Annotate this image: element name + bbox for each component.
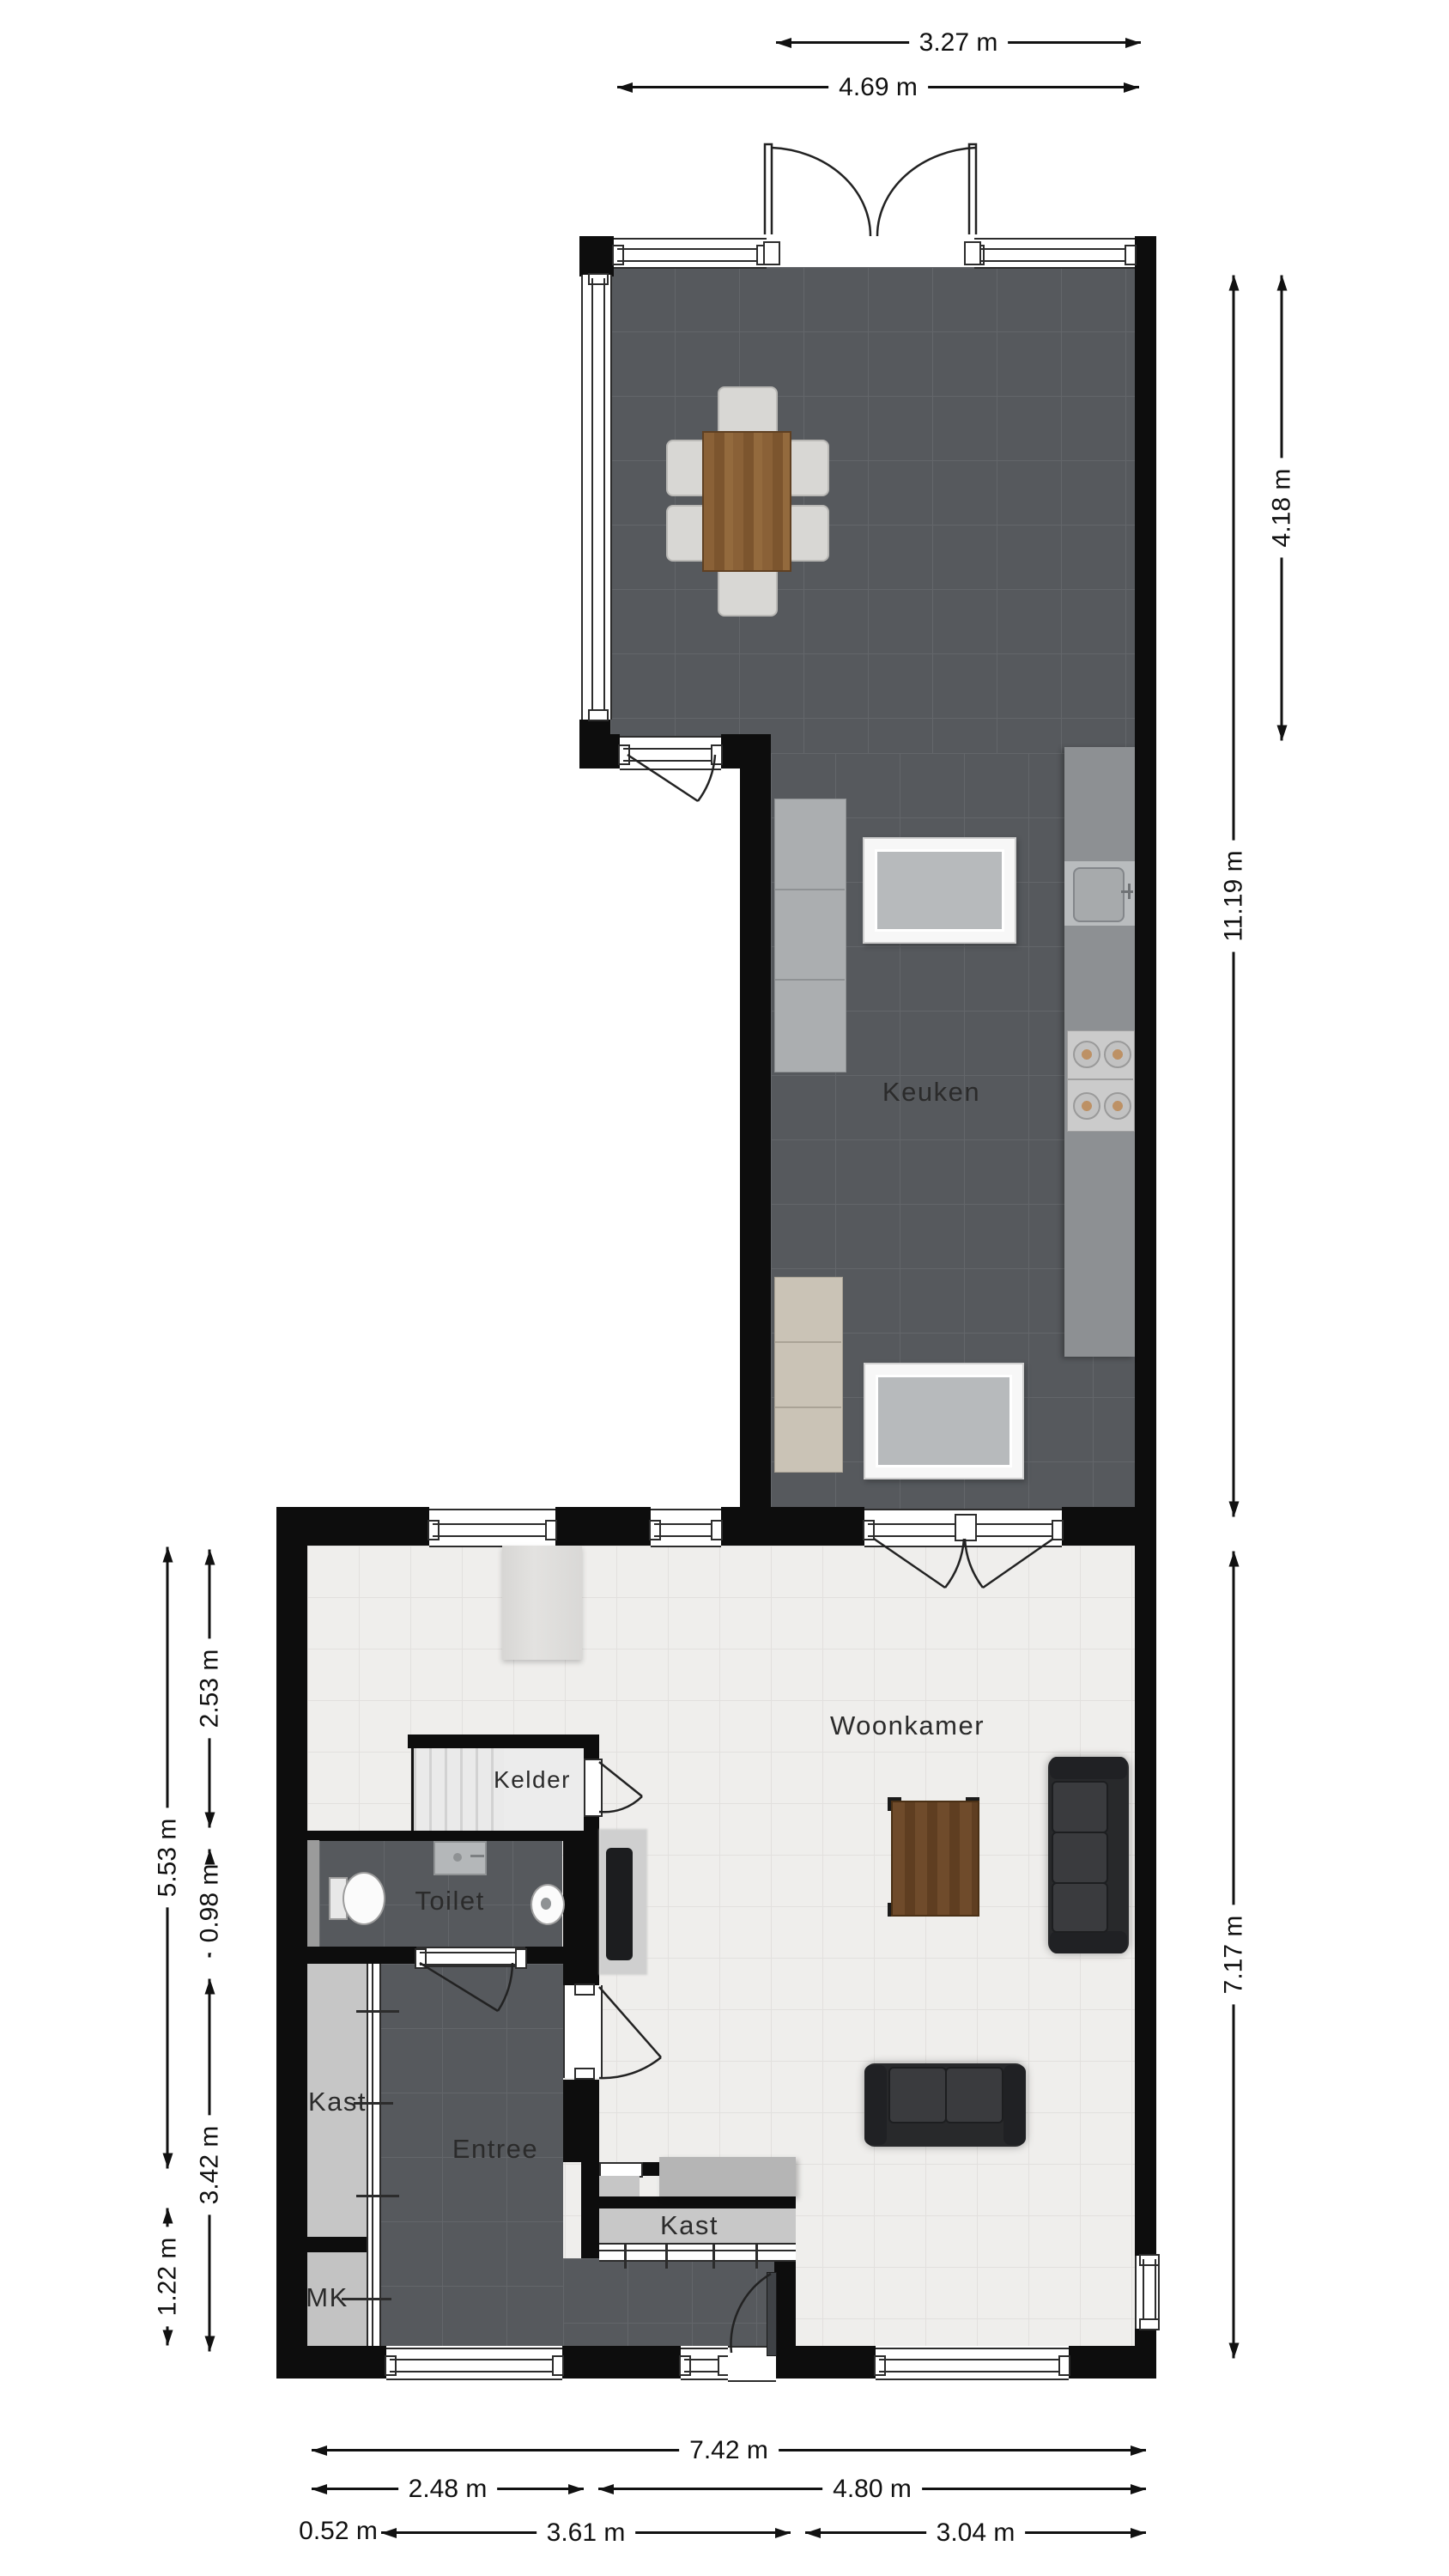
- dimension-label: 5.53 m: [154, 1808, 183, 1908]
- door-leaf: [599, 1762, 642, 1796]
- door-leaf: [599, 1987, 661, 2057]
- dimension-label: 4.18 m: [1268, 459, 1297, 558]
- door-leaf: [969, 144, 976, 234]
- dimension-label: 0.98 m: [196, 1854, 225, 1953]
- door-arc: [731, 2274, 771, 2353]
- room-label-mk: MK: [306, 2282, 349, 2313]
- room-label-woonkamer: Woonkamer: [830, 1710, 985, 1741]
- dimension-left-a: 2.53 m: [209, 1550, 211, 1828]
- dimension-left-b: 0.98 m: [209, 1850, 211, 1958]
- dimension-bottom-c2: 3.61 m: [381, 2531, 791, 2534]
- dimension-label: 3.27 m: [909, 28, 1009, 58]
- room-label-keuken: Keuken: [882, 1077, 980, 1108]
- dimension-bottom-c3: 3.04 m: [805, 2531, 1146, 2534]
- dimension-bottom-total: 7.42 m: [312, 2449, 1146, 2451]
- dimension-right-living: 7.17 m: [1233, 1552, 1235, 2359]
- door-leaf: [627, 755, 698, 801]
- dimension-label: 2.53 m: [196, 1639, 225, 1739]
- dimension-label: 1.22 m: [154, 2227, 183, 2327]
- door-leaf: [420, 1963, 498, 2011]
- room-label-kast-right: Kast: [660, 2210, 718, 2241]
- dimension-bottom-right: 4.80 m: [598, 2488, 1146, 2490]
- room-label-toilet: Toilet: [415, 1886, 484, 1917]
- door-leaf: [983, 1539, 1053, 1588]
- room-label-entree: Entree: [452, 2134, 538, 2165]
- door-arc: [965, 1539, 983, 1588]
- door-arc: [945, 1539, 964, 1588]
- dimension-label: 11.19 m: [1220, 840, 1249, 951]
- dimension-top-outer: 4.69 m: [617, 86, 1139, 88]
- dimension-label: 3.04 m: [926, 2518, 1026, 2548]
- door-arc: [772, 148, 870, 236]
- dimension-right-dining: 4.18 m: [1281, 276, 1283, 741]
- room-label-kelder: Kelder: [494, 1766, 571, 1794]
- door-leaf: [874, 1539, 945, 1588]
- door-arc: [498, 1963, 512, 2011]
- dimension-right-total: 11.19 m: [1233, 276, 1235, 1517]
- dimension-label: 4.69 m: [828, 73, 928, 102]
- dimension-left-c: 3.42 m: [209, 1979, 211, 2352]
- dimension-label: 7.42 m: [679, 2436, 779, 2465]
- dimension-label: 3.61 m: [537, 2518, 636, 2548]
- door-leaf: [765, 144, 772, 234]
- room-label-kast-left: Kast: [308, 2087, 367, 2117]
- dimension-label: 7.17 m: [1220, 1905, 1249, 2005]
- dimension-bottom-left: 2.48 m: [312, 2488, 584, 2490]
- dimension-label: 4.80 m: [822, 2475, 922, 2504]
- door-arc: [698, 755, 715, 801]
- door-arc: [877, 148, 976, 236]
- dimension-bottom-c1: 0.52 m: [294, 2517, 383, 2546]
- dimension-left-upper: 5.53 m: [167, 1547, 169, 2169]
- dimension-top-inner: 3.27 m: [776, 41, 1141, 44]
- floor-plan: Keuken Woonkamer Kelder Toilet Entree Ka…: [0, 0, 1449, 2576]
- dimension-label: 3.42 m: [196, 2116, 225, 2215]
- door-arc: [599, 2057, 661, 2078]
- dimension-label: 2.48 m: [398, 2475, 498, 2504]
- dimension-left-lower: 1.22 m: [167, 2208, 169, 2346]
- door-arc: [599, 1796, 642, 1812]
